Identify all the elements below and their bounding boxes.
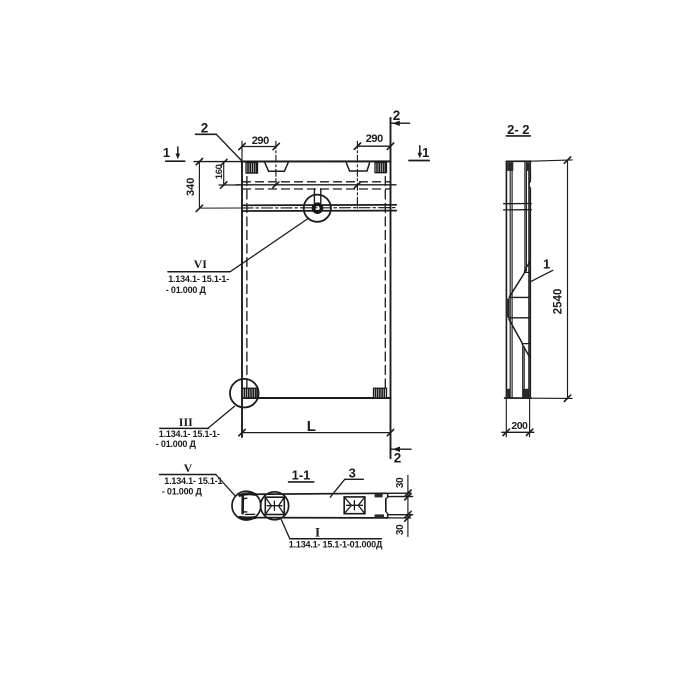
svg-text:160: 160 bbox=[214, 164, 225, 179]
svg-text:1.134.1- 15.1-1-: 1.134.1- 15.1-1- bbox=[168, 274, 229, 284]
svg-text:V: V bbox=[184, 461, 193, 475]
svg-text:2: 2 bbox=[394, 451, 402, 466]
svg-text:2: 2 bbox=[201, 121, 209, 136]
svg-text:1.134.1- 15.1-1: 1.134.1- 15.1-1 bbox=[164, 476, 222, 486]
svg-text:I: I bbox=[315, 525, 320, 540]
svg-text:200: 200 bbox=[511, 420, 528, 432]
svg-text:VI: VI bbox=[194, 257, 208, 271]
svg-text:1.134.1- 15.1-1-: 1.134.1- 15.1-1- bbox=[159, 429, 220, 439]
svg-text:2- 2: 2- 2 bbox=[507, 122, 529, 137]
svg-text:- 01.000 Д: - 01.000 Д bbox=[156, 439, 197, 449]
svg-text:290: 290 bbox=[366, 133, 383, 145]
svg-text:- 01.000 Д: - 01.000 Д bbox=[166, 285, 207, 295]
svg-text:- 01.000 Д: - 01.000 Д bbox=[162, 486, 203, 496]
svg-text:L: L bbox=[307, 418, 316, 435]
svg-text:1.134.1- 15.1-1-01.000Д: 1.134.1- 15.1-1-01.000Д bbox=[289, 540, 383, 550]
svg-text:1: 1 bbox=[163, 145, 170, 160]
svg-text:2: 2 bbox=[393, 108, 401, 123]
svg-text:1-1: 1-1 bbox=[292, 468, 311, 483]
svg-text:340: 340 bbox=[185, 178, 197, 196]
svg-text:290: 290 bbox=[252, 135, 269, 147]
svg-text:3: 3 bbox=[349, 466, 356, 481]
svg-text:30: 30 bbox=[395, 524, 406, 535]
svg-text:1: 1 bbox=[422, 145, 429, 160]
svg-text:III: III bbox=[179, 415, 193, 429]
svg-text:2540: 2540 bbox=[553, 289, 565, 315]
svg-text:30: 30 bbox=[395, 477, 406, 488]
svg-text:1: 1 bbox=[543, 257, 550, 272]
